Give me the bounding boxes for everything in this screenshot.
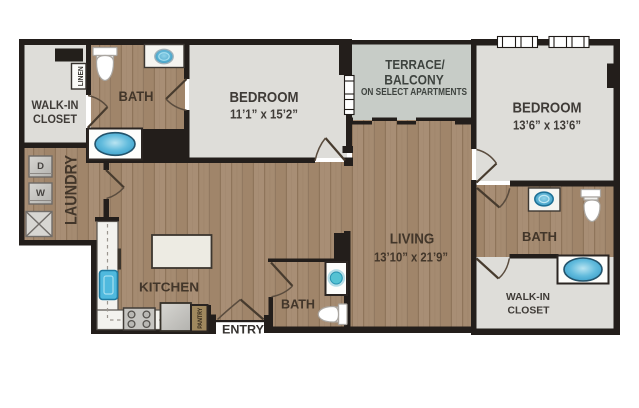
svg-text:13’10” x 21’9”: 13’10” x 21’9” [374,250,448,265]
svg-text:BEDROOM: BEDROOM [230,89,299,106]
svg-text:LIVING: LIVING [390,232,435,248]
svg-text:ON SELECT APARTMENTS: ON SELECT APARTMENTS [361,87,467,98]
svg-text:WALK-IN: WALK-IN [506,291,550,303]
svg-text:BATH: BATH [522,230,557,244]
svg-text:BEDROOM: BEDROOM [513,100,582,117]
svg-text:ENTRY: ENTRY [222,323,264,337]
svg-text:TERRACE/: TERRACE/ [385,57,445,72]
svg-text:W: W [36,188,45,199]
svg-text:BATH: BATH [281,297,315,312]
svg-text:PANTRY: PANTRY [197,307,204,329]
svg-text:BALCONY: BALCONY [384,73,444,88]
svg-text:LAUNDRY: LAUNDRY [62,155,80,225]
svg-text:CLOSET: CLOSET [508,305,551,317]
svg-text:LINEN: LINEN [78,66,85,86]
svg-text:13’6” x 13’6”: 13’6” x 13’6” [513,118,581,133]
svg-text:11’1” x 15’2”: 11’1” x 15’2” [230,107,298,122]
svg-text:KITCHEN: KITCHEN [139,279,199,294]
svg-text:BATH: BATH [119,89,154,104]
svg-text:WALK-IN: WALK-IN [32,98,79,112]
svg-text:D: D [37,161,44,172]
svg-text:CLOSET: CLOSET [33,112,78,126]
